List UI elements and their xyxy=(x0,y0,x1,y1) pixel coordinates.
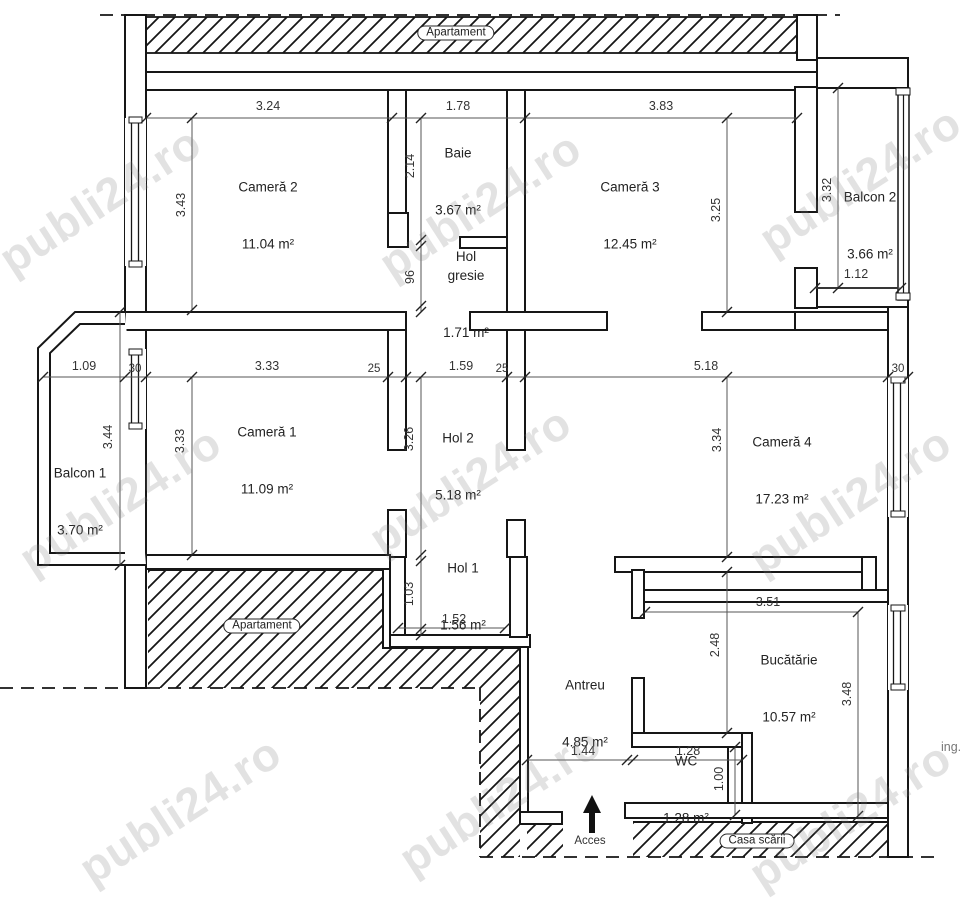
room-name: Antreu xyxy=(562,676,608,695)
dim-wc-height: 1.00 xyxy=(712,767,726,791)
room-label-hol1: Hol 1 1.56 m² xyxy=(440,521,486,654)
dim-bucatarie-west-height: 2.48 xyxy=(708,633,722,657)
room-area: 5.18 m² xyxy=(435,486,481,505)
room-name: Cameră 3 xyxy=(600,178,659,197)
dim-hol1-height: 1.03 xyxy=(402,582,416,606)
dim-balcon1-width: 1.09 xyxy=(72,359,96,373)
room-name: Cameră 1 xyxy=(237,423,296,442)
room-area: 3.70 m² xyxy=(54,521,107,540)
room-name: Hol 1 xyxy=(440,559,486,578)
floorplan-canvas: Cameră 2 11.04 m² Baie 3.67 m² Cameră 3 … xyxy=(0,0,962,900)
access-arrow-icon xyxy=(583,795,601,833)
room-name: Hol 2 xyxy=(435,429,481,448)
apartament-top-badge: Apartament xyxy=(417,26,494,41)
casa-scarii-badge: Casa scării xyxy=(720,834,795,849)
room-label-hol-gresie: Hol gresie 1.71 m² xyxy=(439,209,493,361)
dim-wall-a: 25 xyxy=(368,363,381,375)
room-name: Cameră 4 xyxy=(752,433,811,452)
dim-baie-width: 1.78 xyxy=(446,99,470,113)
acces-label: Acces xyxy=(574,835,605,847)
room-area: 17.23 m² xyxy=(752,490,811,509)
dim-window-right: 30 xyxy=(892,363,905,375)
apartament-left-badge: Apartament xyxy=(223,619,300,634)
room-label-camera4: Cameră 4 17.23 m² xyxy=(752,395,811,528)
floorplan-svg xyxy=(0,0,962,900)
dim-hol2-height: 3.26 xyxy=(402,427,416,451)
room-name: Balcon 1 xyxy=(54,464,107,483)
room-label-camera1: Cameră 1 11.09 m² xyxy=(237,385,296,518)
dim-balcon2-height: 3.32 xyxy=(820,178,834,202)
room-name: Balcon 2 xyxy=(844,188,897,207)
dim-window-left: 30 xyxy=(129,363,142,375)
room-area: 1.71 m² xyxy=(439,323,493,342)
dim-camera3-height: 3.25 xyxy=(709,198,723,222)
dim-wc-width: 1.28 xyxy=(676,744,700,758)
dim-camera1-height: 3.33 xyxy=(173,429,187,453)
room-area: 10.57 m² xyxy=(760,708,817,727)
room-name: Baie xyxy=(435,144,481,163)
dim-hol-gresie-height: 96 xyxy=(403,270,417,284)
room-label-wc: WC 1.28 m² xyxy=(663,714,709,847)
room-label-balcon2: Balcon 2 3.66 m² xyxy=(844,150,897,283)
dim-bucatarie-height: 3.48 xyxy=(840,682,854,706)
room-area: 11.09 m² xyxy=(237,480,296,499)
dim-camera2-height: 3.43 xyxy=(174,193,188,217)
dim-balcon1-height: 3.44 xyxy=(101,425,115,449)
dim-camera4-height: 3.34 xyxy=(710,428,724,452)
room-label-camera2: Cameră 2 11.04 m² xyxy=(238,140,297,273)
dim-balcon2-width: 1.12 xyxy=(844,267,868,281)
room-area: 3.66 m² xyxy=(844,245,897,264)
engineer-label: ing. xyxy=(941,740,961,754)
room-area: 11.04 m² xyxy=(238,235,297,254)
dim-baie-height: 2.14 xyxy=(403,154,417,178)
room-name: Bucătărie xyxy=(760,651,817,670)
dim-hol1-width: 1.52 xyxy=(442,612,466,626)
dim-hol2-width: 1.59 xyxy=(449,359,473,373)
dim-camera1-width: 3.33 xyxy=(255,359,279,373)
room-name: Hol gresie xyxy=(439,247,493,285)
room-name: Cameră 2 xyxy=(238,178,297,197)
dim-camera2-width: 3.24 xyxy=(256,99,280,113)
room-label-hol2: Hol 2 5.18 m² xyxy=(435,391,481,524)
dim-antreu-width: 1.44 xyxy=(571,744,595,758)
dim-camera3-width: 3.83 xyxy=(649,99,673,113)
dim-bucatarie-width: 3.51 xyxy=(756,595,780,609)
room-label-balcon1: Balcon 1 3.70 m² xyxy=(54,426,107,559)
dim-camera4-width: 5.18 xyxy=(694,359,718,373)
room-area: 1.28 m² xyxy=(663,809,709,828)
dim-wall-b: 25 xyxy=(496,363,509,375)
room-label-camera3: Cameră 3 12.45 m² xyxy=(600,140,659,273)
room-area: 12.45 m² xyxy=(600,235,659,254)
room-label-bucatarie: Bucătărie 10.57 m² xyxy=(760,613,817,746)
